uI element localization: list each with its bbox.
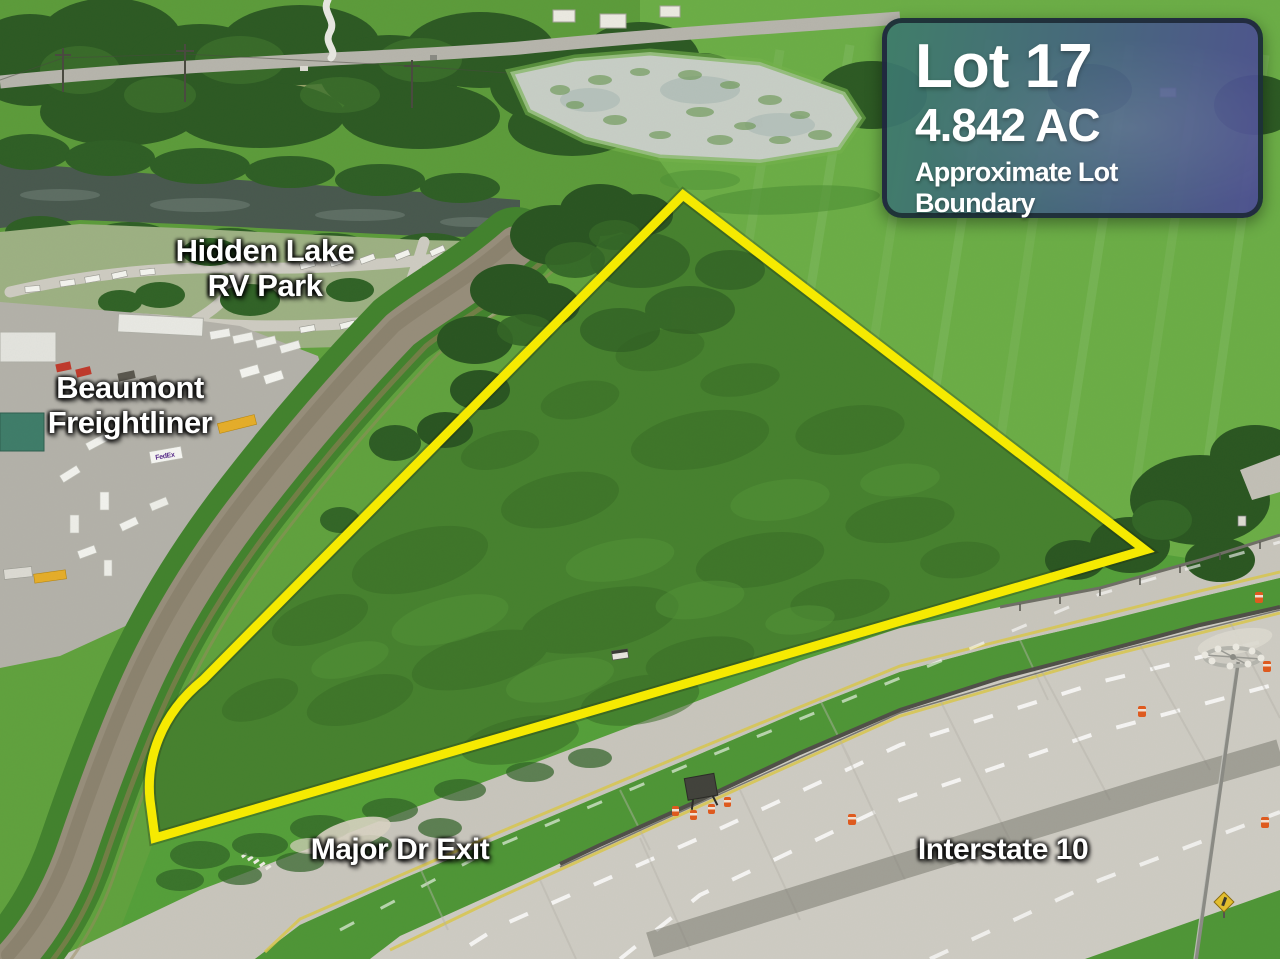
freightliner-label-line1: Beaumont	[10, 370, 250, 405]
rv-park-label: Hidden Lake RV Park	[140, 233, 390, 303]
interstate-label: Interstate 10	[868, 833, 1138, 867]
rv-park-label-line1: Hidden Lake	[140, 233, 390, 268]
rv-park-label-line2: RV Park	[140, 268, 390, 303]
freightliner-label-line2: Freightliner	[10, 405, 250, 440]
info-card: Lot 17 4.842 AC Approximate Lot Boundary	[882, 18, 1263, 218]
exit-label: Major Dr Exit	[270, 833, 530, 867]
lot-subtitle: Approximate Lot Boundary	[915, 157, 1240, 219]
aerial-photo-stage: FedEx	[0, 0, 1280, 959]
lot-acreage: 4.842 AC	[915, 101, 1240, 149]
freightliner-label: Beaumont Freightliner	[10, 370, 250, 440]
lot-title: Lot 17	[915, 35, 1240, 98]
